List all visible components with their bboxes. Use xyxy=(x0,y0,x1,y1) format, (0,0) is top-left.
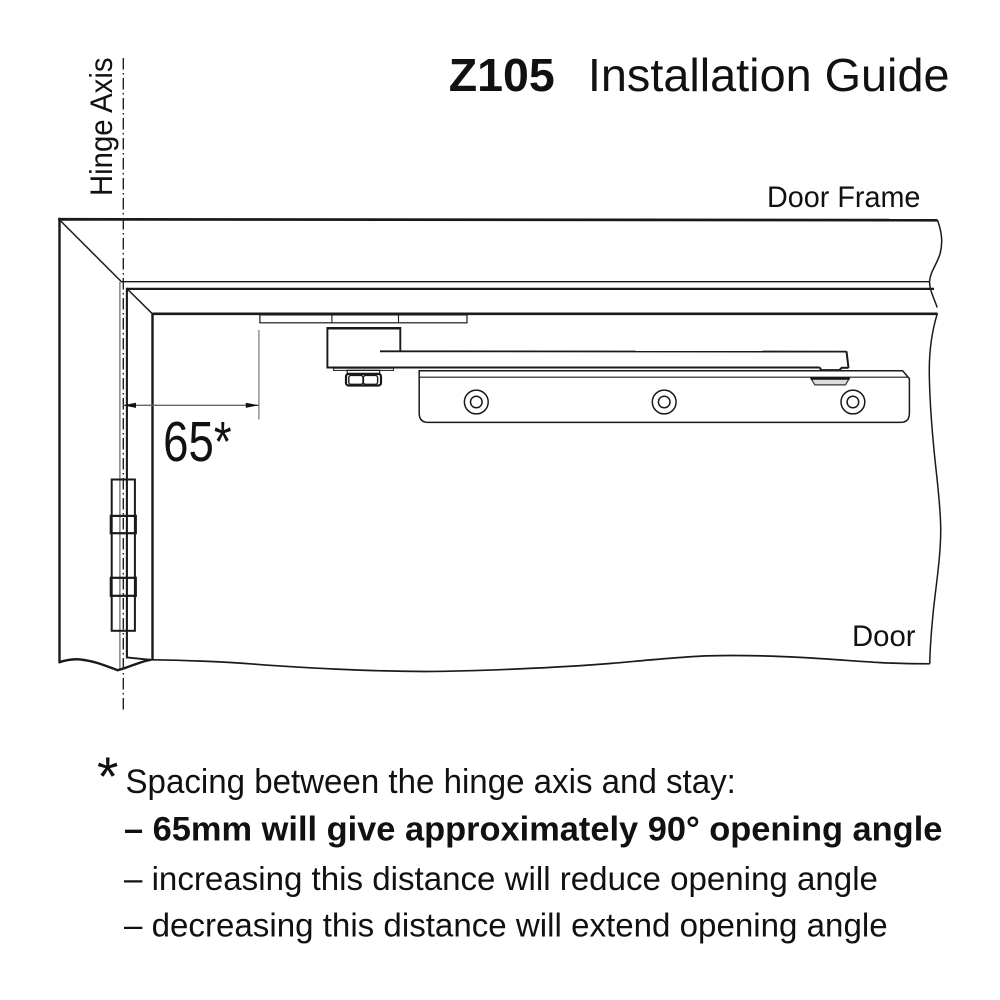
svg-text:– 65mm will give approximately: – 65mm will give approximately 90° openi… xyxy=(124,811,942,849)
svg-text:Hinge Axis: Hinge Axis xyxy=(85,57,119,196)
svg-text:– increasing this distance wil: – increasing this distance will reduce o… xyxy=(124,861,878,898)
svg-text:Door Frame: Door Frame xyxy=(767,182,920,214)
svg-text:Spacing between the hinge axis: Spacing between the hinge axis and stay: xyxy=(126,764,736,802)
svg-text:65*: 65* xyxy=(163,409,231,473)
svg-text:Installation Guide: Installation Guide xyxy=(588,49,950,101)
svg-text:– decreasing this distance wil: – decreasing this distance will extend o… xyxy=(124,907,888,944)
svg-text:*: * xyxy=(97,745,118,807)
svg-text:Door: Door xyxy=(852,620,916,653)
svg-text:Z105: Z105 xyxy=(449,49,555,101)
